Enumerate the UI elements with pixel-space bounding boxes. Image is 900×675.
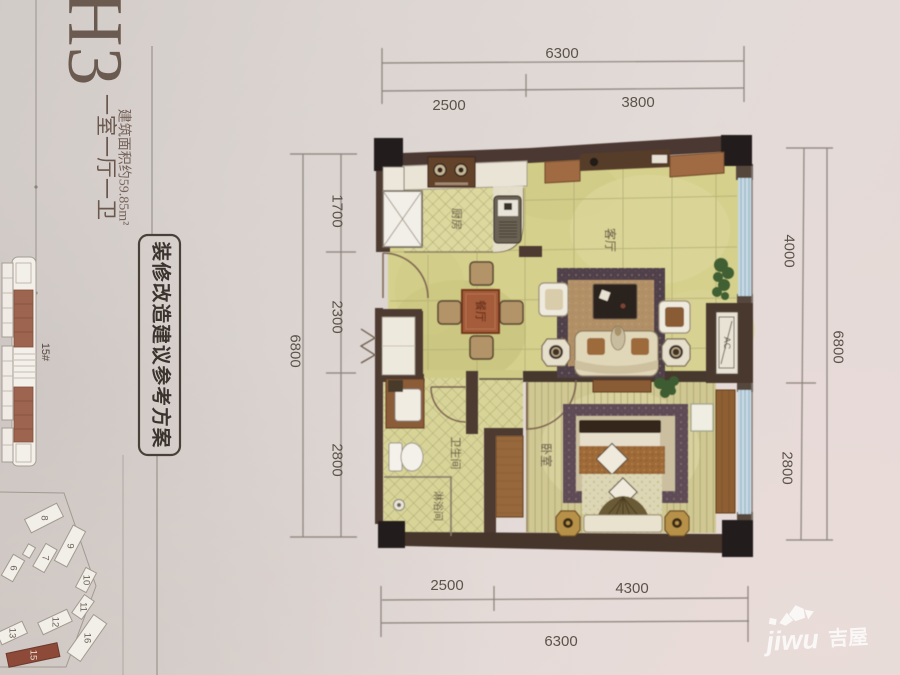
svg-text:10: 10 [81,575,92,586]
svg-text:2300: 2300 [329,300,346,333]
svg-text:6800: 6800 [287,334,304,367]
svg-text:卫生间: 卫生间 [449,437,463,470]
svg-text:6300: 6300 [544,633,577,650]
svg-text:15#: 15# [39,343,51,362]
svg-text:卧室: 卧室 [539,443,554,467]
svg-text:11: 11 [78,602,89,612]
svg-text:12: 12 [50,617,61,628]
svg-text:16: 16 [82,633,93,644]
svg-text:AC: AC [722,337,732,350]
svg-text:jiwu: jiwu [763,624,820,657]
svg-text:H3: H3 [53,0,140,86]
svg-text:4300: 4300 [615,580,648,597]
svg-text:6800: 6800 [830,330,847,363]
svg-text:2500: 2500 [430,577,463,594]
svg-text:客厅: 客厅 [603,228,618,252]
svg-text:2500: 2500 [432,97,465,114]
svg-text:餐厅: 餐厅 [474,300,488,322]
svg-text:13: 13 [7,628,18,639]
svg-text:吉屋: 吉屋 [828,625,869,650]
svg-text:8: 8 [39,515,50,520]
svg-text:15: 15 [28,650,39,661]
svg-text:建筑面积约59.85m²: 建筑面积约59.85m² [116,109,132,226]
svg-text:一室一厅一卫: 一室一厅一卫 [94,94,118,220]
svg-text:淋浴间: 淋浴间 [432,491,445,521]
svg-text:7: 7 [40,555,51,560]
svg-text:6: 6 [8,565,19,570]
svg-text:9: 9 [65,543,76,548]
svg-text:2800: 2800 [329,443,346,476]
svg-text:1700: 1700 [329,194,346,227]
svg-text:装修改造建议参考方案: 装修改造建议参考方案 [150,240,173,448]
svg-text:厨房: 厨房 [450,208,463,230]
svg-text:2800: 2800 [779,451,796,484]
svg-text:4000: 4000 [781,234,798,267]
svg-text:3800: 3800 [621,94,654,111]
svg-text:6300: 6300 [545,45,578,62]
